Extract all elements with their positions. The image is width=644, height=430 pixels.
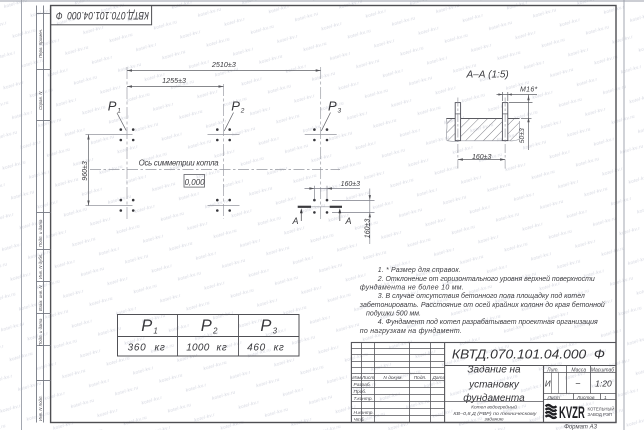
svg-text:подушки 500 мм.: подушки 500 мм. <box>366 310 421 318</box>
svg-text:Котел водогрейный: Котел водогрейный <box>471 403 517 410</box>
svg-text:960±3: 960±3 <box>82 161 89 181</box>
svg-text:1: 1 <box>604 395 607 401</box>
svg-text:Чтб.: Чтб. <box>354 417 365 423</box>
svg-text:кг: кг <box>274 342 285 353</box>
svg-text:3: 3 <box>273 326 278 335</box>
svg-text:1. * Размер для справок.: 1. * Размер для справок. <box>378 266 461 274</box>
svg-text:КОТЕЛЬНЫЙ: КОТЕЛЬНЫЙ <box>588 407 615 412</box>
svg-text:3. В случае отсутствия бетонно: 3. В случае отсутствия бетонного пола пл… <box>378 292 585 300</box>
svg-text:Инв. N подл.: Инв. N подл. <box>38 395 43 421</box>
svg-text:1:20: 1:20 <box>595 379 612 389</box>
svg-text:360: 360 <box>128 342 147 353</box>
svg-text:КВТД.070.101.04.000 Ф: КВТД.070.101.04.000 Ф <box>56 9 149 21</box>
svg-text:1: 1 <box>153 326 157 335</box>
svg-text:160±3: 160±3 <box>341 181 361 188</box>
svg-text:Р: Р <box>231 98 240 113</box>
svg-text:2510±3: 2510±3 <box>211 60 236 69</box>
svg-text:Подп.: Подп. <box>414 375 427 381</box>
svg-text:2. Отклонение от горизонтально: 2. Отклонение от горизонтального уровня … <box>377 275 595 283</box>
svg-text:А–А (1:5): А–А (1:5) <box>465 70 508 81</box>
svg-text:Перв. примен.: Перв. примен. <box>38 29 43 58</box>
svg-text:Н.контр.: Н.контр. <box>354 410 374 416</box>
svg-text:3: 3 <box>338 108 342 115</box>
svg-text:установку: установку <box>468 379 520 390</box>
svg-text:1: 1 <box>117 108 121 115</box>
svg-text:ЗАВОД РЭП: ЗАВОД РЭП <box>588 412 613 417</box>
svg-text:Справ. N: Справ. N <box>38 91 43 110</box>
svg-text:N докум.: N докум. <box>383 375 402 381</box>
svg-text:И: И <box>545 379 551 388</box>
svg-text:0,000: 0,000 <box>185 178 206 187</box>
svg-text:4. Фундамент под котел разраба: 4. Фундамент под котел разрабатывает про… <box>378 318 598 326</box>
svg-text:Р: Р <box>201 317 212 335</box>
svg-text:1255±3: 1255±3 <box>162 76 186 85</box>
svg-text:КВ–0,8 Д (РВР) по техническому: КВ–0,8 Д (РВР) по техническому <box>453 411 537 417</box>
svg-text:Р: Р <box>260 317 271 335</box>
svg-text:Инв. N дубл.: Инв. N дубл. <box>38 254 43 279</box>
svg-text:по нагрузкам на фундамент.: по нагрузкам на фундамент. <box>360 327 462 335</box>
svg-text:50±3: 50±3 <box>519 128 526 143</box>
svg-text:фундамента: фундамента <box>463 392 525 404</box>
svg-text:кг: кг <box>217 342 228 353</box>
svg-text:М16*: М16* <box>520 87 538 94</box>
svg-text:Лист: Лист <box>547 395 560 401</box>
svg-text:Р: Р <box>141 317 152 335</box>
svg-text:заданию: заданию <box>483 417 503 423</box>
svg-text:Ось симметрии котла: Ось симметрии котла <box>139 158 220 167</box>
svg-text:Формат А3: Формат А3 <box>564 425 597 430</box>
svg-text:КВТД.070.101.04.000 Ф: КВТД.070.101.04.000 Ф <box>452 347 605 362</box>
svg-text:Лист: Лист <box>361 375 374 381</box>
svg-text:забетонировать. Расстояние от: забетонировать. Расстояние от осей крайн… <box>359 301 605 309</box>
svg-text:Взам. инв. N: Взам. инв. N <box>38 285 43 311</box>
svg-text:Р: Р <box>108 98 117 113</box>
svg-text:Т.контр.: Т.контр. <box>354 396 373 402</box>
svg-text:Изм.: Изм. <box>352 375 362 381</box>
svg-text:Масса: Масса <box>571 367 586 373</box>
svg-text:Масштаб: Масштаб <box>591 367 615 373</box>
svg-text:фундамента не более 10 мм.: фундамента не более 10 мм. <box>360 284 464 292</box>
svg-text:2: 2 <box>212 326 218 335</box>
svg-text:Лит.: Лит. <box>546 367 559 373</box>
svg-text:160±3: 160±3 <box>472 154 492 161</box>
svg-text:Р: Р <box>328 98 337 113</box>
svg-text:Проб.: Проб. <box>354 389 367 395</box>
svg-text:А: А <box>345 216 352 226</box>
svg-text:Разраб.: Разраб. <box>354 382 371 388</box>
svg-text:кг: кг <box>155 342 166 353</box>
svg-text:Подп. и дата: Подп. и дата <box>38 219 43 247</box>
svg-text:160±3: 160±3 <box>364 219 371 239</box>
svg-text:Подп. и дата: Подп. и дата <box>38 318 43 346</box>
svg-text:1000: 1000 <box>186 342 210 353</box>
svg-text:2: 2 <box>240 108 245 115</box>
svg-text:460: 460 <box>247 342 266 353</box>
svg-text:KVZR: KVZR <box>559 404 585 422</box>
svg-text:А: А <box>292 216 299 226</box>
svg-text:Листов: Листов <box>576 395 595 401</box>
svg-text:Дата: Дата <box>432 375 446 381</box>
svg-text:–: – <box>575 378 581 387</box>
svg-text:Задание на: Задание на <box>467 365 521 376</box>
